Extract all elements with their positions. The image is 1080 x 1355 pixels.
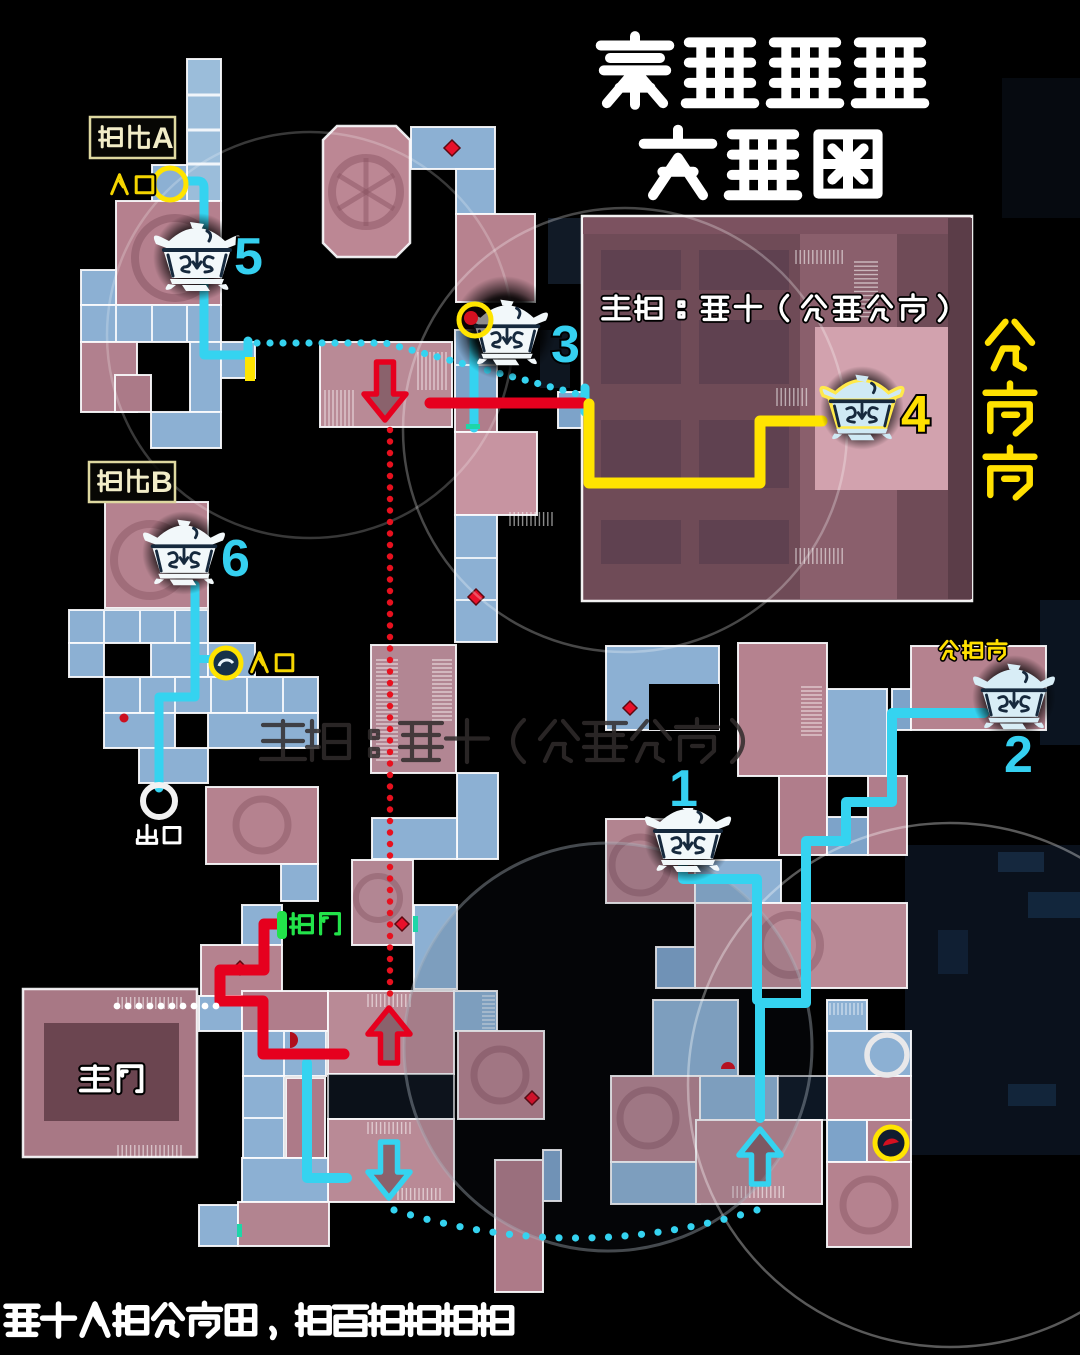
svg-text:4: 4 — [901, 386, 930, 444]
svg-text:5: 5 — [234, 228, 263, 286]
svg-text:1: 1 — [669, 760, 698, 818]
svg-text:6: 6 — [221, 530, 250, 588]
svg-text:B: B — [151, 466, 173, 499]
svg-text:3: 3 — [551, 316, 580, 374]
svg-text:2: 2 — [1004, 726, 1033, 784]
svg-text:A: A — [152, 122, 174, 155]
